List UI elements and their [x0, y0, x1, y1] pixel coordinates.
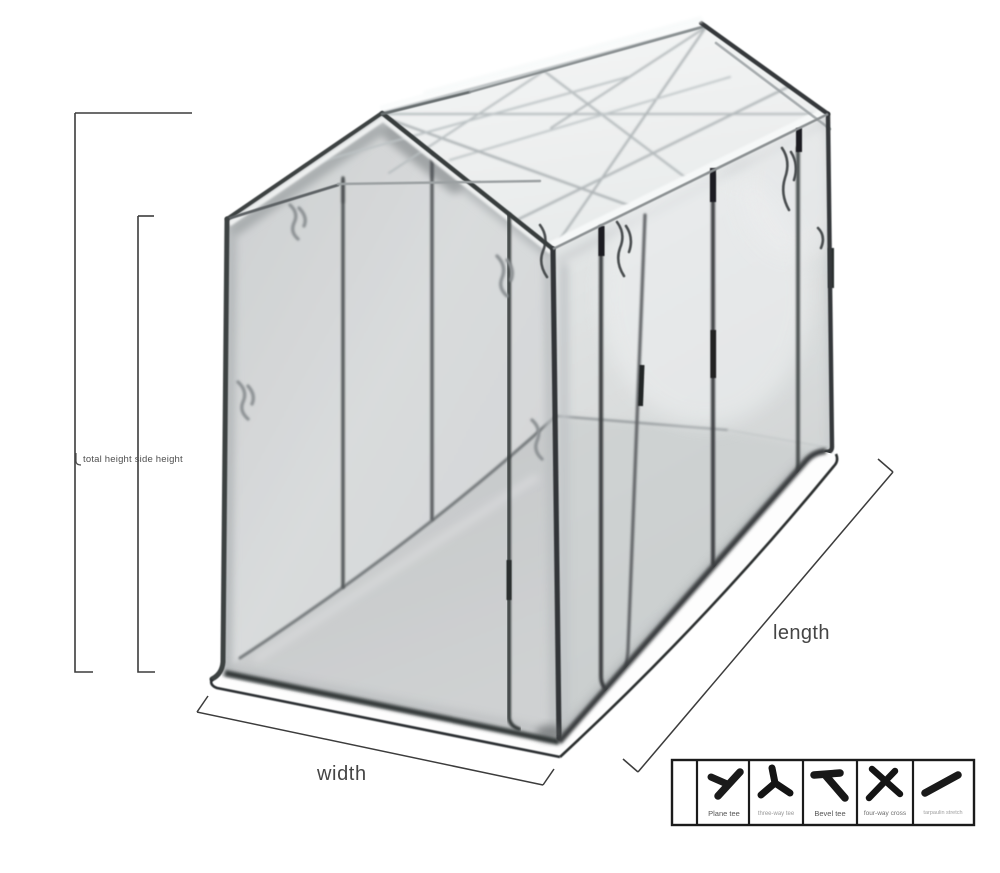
svg-text:three-way tee: three-way tee: [758, 811, 795, 817]
svg-text:length: length: [773, 622, 830, 644]
svg-text:Plane tee: Plane tee: [708, 809, 740, 818]
svg-text:width: width: [316, 763, 367, 785]
svg-text:Bevel tee: Bevel tee: [814, 809, 845, 818]
svg-text:tarpaulin stretch: tarpaulin stretch: [923, 810, 962, 816]
svg-text:four-way cross: four-way cross: [864, 810, 907, 817]
svg-text:total height side height: total height side height: [83, 454, 183, 465]
